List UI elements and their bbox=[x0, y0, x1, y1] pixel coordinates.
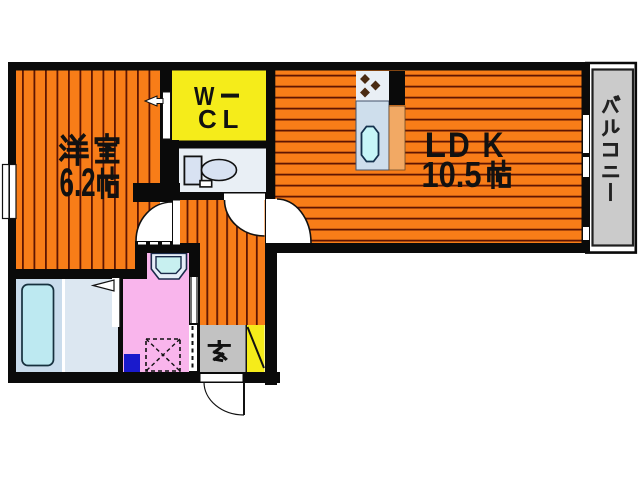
svg-text:6.2: 6.2 bbox=[60, 160, 96, 205]
svg-text:K: K bbox=[483, 125, 504, 164]
svg-text:10.5: 10.5 bbox=[422, 156, 482, 196]
svg-text:L: L bbox=[223, 104, 239, 134]
svg-text:C: C bbox=[198, 104, 217, 134]
